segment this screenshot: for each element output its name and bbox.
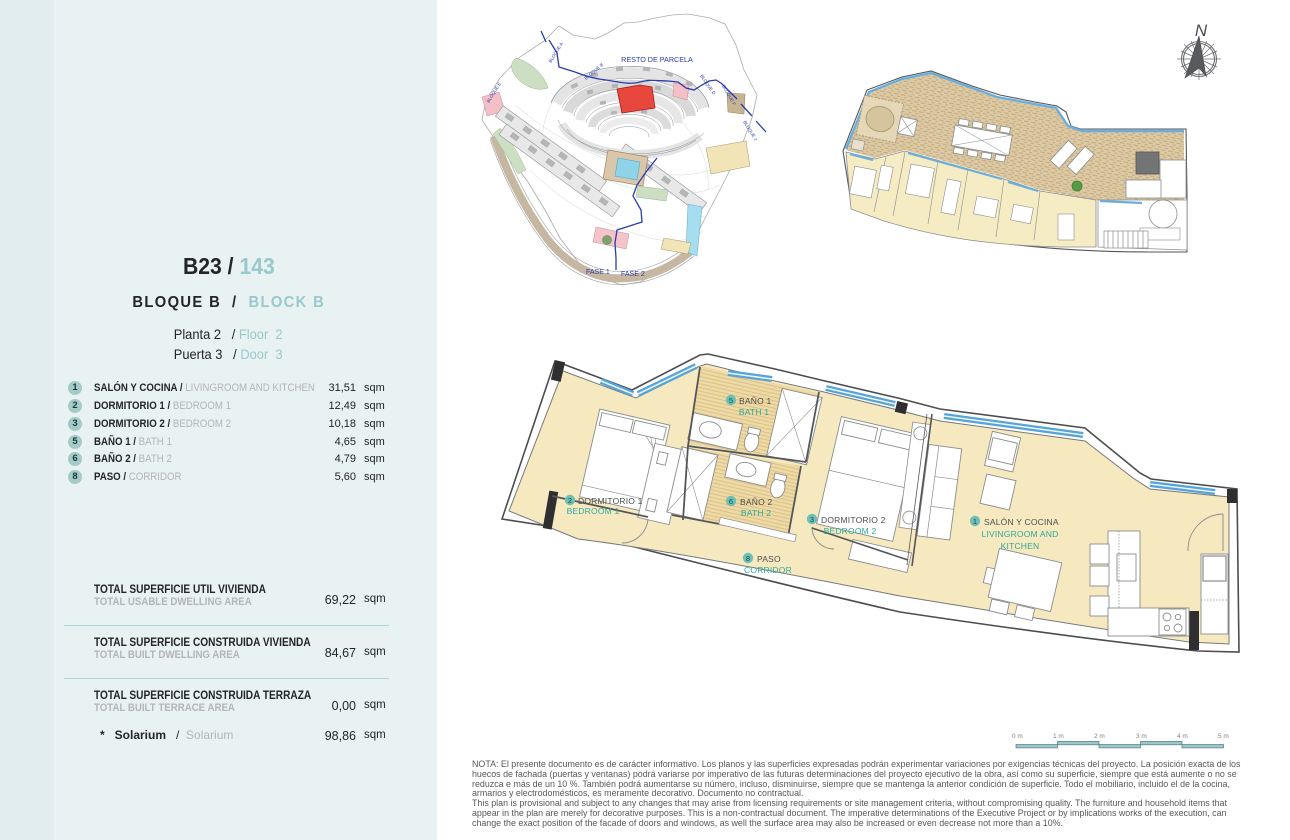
svg-text:FASE 2: FASE 2 xyxy=(621,271,645,278)
svg-text:3: 3 xyxy=(810,515,814,524)
svg-text:RESTO DE PARCELA: RESTO DE PARCELA xyxy=(621,55,693,64)
svg-text:FASE 1: FASE 1 xyxy=(586,269,610,276)
svg-text:BEDROOM 2: BEDROOM 2 xyxy=(824,526,877,536)
svg-text:BATH 1: BATH 1 xyxy=(739,407,769,417)
svg-text:1: 1 xyxy=(973,517,977,526)
svg-text:2 m: 2 m xyxy=(1094,733,1105,740)
svg-text:3 m: 3 m xyxy=(1136,733,1147,740)
svg-text:0 m: 0 m xyxy=(1012,733,1023,740)
svg-text:BATH 2: BATH 2 xyxy=(741,508,771,518)
svg-text:CORRIDOR: CORRIDOR xyxy=(744,565,792,575)
svg-text:SALÓN Y COCINA: SALÓN Y COCINA xyxy=(984,517,1059,527)
svg-text:BAÑO 1: BAÑO 1 xyxy=(739,396,771,406)
svg-text:N: N xyxy=(1195,21,1208,40)
svg-text:5 m: 5 m xyxy=(1218,733,1229,740)
svg-text:1 m: 1 m xyxy=(1053,733,1064,740)
svg-text:DORMITORIO 1: DORMITORIO 1 xyxy=(578,496,643,506)
svg-text:8: 8 xyxy=(746,554,750,563)
svg-text:5: 5 xyxy=(729,396,733,405)
svg-text:2: 2 xyxy=(568,496,572,505)
svg-text:PASO: PASO xyxy=(757,554,781,564)
svg-text:6: 6 xyxy=(729,497,733,506)
svg-text:KITCHEN: KITCHEN xyxy=(1001,541,1040,551)
svg-text:BAÑO 2: BAÑO 2 xyxy=(740,497,772,507)
svg-text:4 m: 4 m xyxy=(1177,733,1188,740)
svg-text:BEDROOM 1: BEDROOM 1 xyxy=(567,506,620,516)
svg-text:LIVINGROOM AND: LIVINGROOM AND xyxy=(982,529,1059,539)
svg-text:DORMITORIO 2: DORMITORIO 2 xyxy=(821,515,886,525)
